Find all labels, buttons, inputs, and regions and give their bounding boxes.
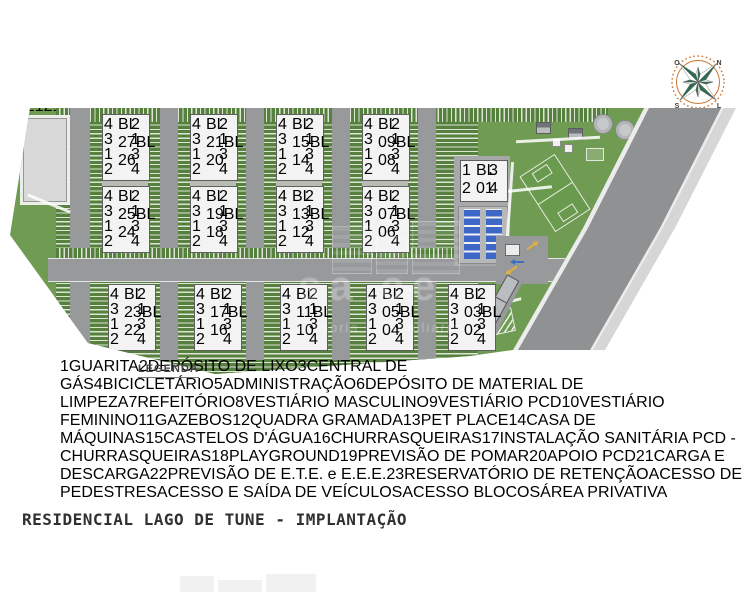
lg-item: 9VESTIÁRIO PCD	[429, 394, 561, 411]
cell: 3	[192, 131, 205, 145]
cell: 1	[278, 146, 291, 160]
lg-badge: 16	[313, 430, 331, 447]
pdot	[382, 301, 394, 315]
lg-label: PREVISÃO DE E.T.E. e E.E.E.	[168, 466, 387, 483]
pdot	[206, 203, 218, 217]
pdot	[206, 176, 218, 179]
pdot	[382, 331, 394, 345]
cell: 3	[196, 301, 209, 315]
residential-block: 42311324BL 25BL 24	[102, 186, 150, 253]
bcenter: BL 25BL 24	[118, 188, 130, 202]
lg-item: 4BICICLETÁRIO	[94, 376, 214, 393]
compass-west-label: O	[674, 60, 680, 67]
internal-road	[246, 108, 264, 360]
lg-item: 22PREVISÃO DE E.T.E. e E.E.E.	[150, 466, 387, 483]
bcenter: BL 03BL 02	[464, 286, 476, 300]
pdot	[192, 176, 205, 179]
lg-label: PREVISÃO DE POMAR	[358, 448, 530, 465]
internal-road	[332, 108, 350, 360]
bcenter: BL 21BL 20	[206, 116, 218, 130]
internal-road	[160, 108, 178, 360]
pdot	[476, 198, 488, 200]
pdot	[124, 331, 136, 345]
lg-item: ACESSO E SAÍDA DE VEÍCULOS	[157, 484, 402, 501]
lg-label: RESERVATÓRIO DE RETENÇÃO	[404, 466, 648, 483]
bcenter: BL 09BL 08	[378, 116, 390, 130]
pdot	[206, 233, 218, 247]
bcenter: BL 19BL 18	[206, 188, 218, 202]
lg-label: GAZEBOS	[155, 412, 232, 429]
pdot	[104, 176, 117, 179]
compass-north-label: N	[716, 60, 721, 67]
lg-item: ÁREA PRIVATIVA	[540, 484, 667, 501]
lg-badge: 4	[94, 376, 103, 393]
bbq-structure	[536, 122, 551, 134]
pdot	[118, 146, 130, 160]
residential-block: 42311324BL 13BL 12	[276, 186, 324, 253]
pdot	[118, 233, 130, 247]
cell: 1	[450, 316, 463, 330]
lg-item: 18PLAYGROUND	[211, 448, 340, 465]
pdot	[378, 233, 390, 247]
lg-label: ÁREA PRIVATIVA	[540, 484, 667, 501]
lg-label: VESTIÁRIO PCD	[438, 394, 562, 411]
pdot	[206, 161, 218, 175]
pdot	[292, 233, 304, 247]
lg-label: ADMINISTRAÇÃO	[223, 376, 356, 393]
site-plan-page: N O S L	[0, 0, 750, 611]
legend-title: LEGENDA	[138, 363, 199, 378]
lg-label: CHURRASQUEIRAS	[331, 430, 482, 447]
pdot	[278, 176, 291, 179]
pdot	[305, 176, 318, 179]
cell: 3	[192, 203, 205, 217]
pdot	[378, 131, 390, 145]
guard-house	[505, 244, 520, 256]
internal-road	[418, 108, 436, 360]
lg-badge: 1	[60, 358, 69, 375]
marker: 21	[26, 98, 44, 115]
cell: 3	[278, 131, 291, 145]
lg-badge: 14	[508, 412, 526, 429]
cell: 3	[450, 301, 463, 315]
pdot	[124, 316, 136, 330]
pdot	[378, 146, 390, 160]
pdot	[378, 218, 390, 232]
residential-block: 42311324BL 23BL 22	[108, 284, 156, 351]
legend: LEGENDA 1GUARITA2DEPÓSITO DE LIXO3CENTRA…	[60, 358, 748, 470]
pdot	[464, 331, 476, 345]
cell: 1	[196, 316, 209, 330]
cell: 1	[104, 146, 117, 160]
cell: 1	[110, 316, 123, 330]
lg-badge: 11	[138, 412, 155, 429]
pdot	[395, 346, 408, 349]
pdot	[382, 346, 394, 349]
residential-block: 42311324BL 09BL 08	[362, 114, 410, 181]
lg-label: ACESSO E SAÍDA DE VEÍCULOS	[157, 484, 402, 501]
residential-block: 42311324BL 27BL 26	[102, 114, 150, 181]
cell: 3	[364, 203, 377, 217]
pdot	[464, 346, 476, 349]
residential-block: 42311324BL 05BL 04	[366, 284, 414, 351]
pdot	[223, 346, 236, 349]
lg-label: PLAYGROUND	[229, 448, 340, 465]
water-tank	[593, 114, 613, 134]
residential-block: 42311324BL 03BL 02	[448, 284, 496, 351]
pdot	[382, 316, 394, 330]
pdot	[192, 248, 205, 251]
pdot	[378, 176, 390, 179]
cell: 4	[282, 286, 295, 300]
covered-parking-row	[464, 209, 480, 259]
cell: 1	[104, 218, 117, 232]
pdot	[219, 176, 232, 179]
pdot	[296, 346, 308, 349]
lg-badge: 6	[356, 376, 365, 393]
lg-label: QUADRA GRAMADA	[250, 412, 403, 429]
cell: 2	[192, 233, 205, 247]
pdot	[110, 346, 123, 349]
lg-item: 19PREVISÃO DE POMAR	[340, 448, 529, 465]
pdot	[219, 248, 232, 251]
sports-field	[519, 154, 590, 232]
marker: 23	[8, 98, 26, 115]
pdot	[118, 248, 130, 251]
pdot	[296, 316, 308, 330]
lg-item: 12QUADRA GRAMADA	[232, 412, 403, 429]
pdot	[292, 203, 304, 217]
pdot	[118, 203, 130, 217]
cell: 3	[282, 301, 295, 315]
lg-label: ACESSO BLOCOS	[402, 484, 540, 501]
pdot	[292, 248, 304, 251]
cell: 1	[364, 218, 377, 232]
pdot	[391, 176, 404, 179]
bcenter: BL 27BL 26	[118, 116, 130, 130]
cell: 1	[278, 218, 291, 232]
bcenter: BL 17BL 16	[210, 286, 222, 300]
cell: 4	[278, 188, 291, 202]
pdot	[292, 131, 304, 145]
cell: 3	[364, 131, 377, 145]
pdot	[296, 301, 308, 315]
bcenter: BL 11BL 10	[296, 286, 308, 300]
pdot	[118, 161, 130, 175]
pdot	[391, 248, 404, 251]
pdot	[464, 301, 476, 315]
pdot	[196, 346, 209, 349]
cell: 2	[450, 331, 463, 345]
lg-item: 11GAZEBOS	[138, 412, 232, 429]
cell: 1	[368, 316, 381, 330]
cell: 4	[110, 286, 123, 300]
residential-block: 42311324BL 15BL 14	[276, 114, 324, 181]
lg-label: REFEITÓRIO	[137, 394, 235, 411]
lg-item: 16CHURRASQUEIRAS	[313, 430, 482, 447]
cell: 2	[278, 233, 291, 247]
cell: 4	[104, 188, 117, 202]
cell: 1	[192, 218, 205, 232]
pdot	[131, 176, 144, 179]
pdot	[464, 316, 476, 330]
retention-reservoir-building	[23, 118, 67, 202]
lg-item: 23RESERVATÓRIO DE RETENÇÃO	[386, 466, 648, 483]
pet-place-area	[586, 148, 604, 161]
goal-box	[532, 164, 553, 183]
pdot	[210, 346, 222, 349]
cell: 2	[364, 161, 377, 175]
lg-badge: 9	[429, 394, 438, 411]
residential-block: 42311324BL 21BL 20	[190, 114, 238, 181]
lg-item: 7REFEITÓRIO	[128, 394, 235, 411]
lg-badge: 19	[340, 448, 358, 465]
cell: 1	[462, 162, 475, 179]
cell: 4	[364, 116, 377, 130]
pdot	[476, 180, 488, 197]
lg-item: 1GUARITA	[60, 358, 139, 375]
pdot	[206, 146, 218, 160]
pdot	[206, 248, 218, 251]
pdot	[124, 346, 136, 349]
pdot	[278, 248, 291, 251]
pdot	[210, 331, 222, 345]
lg-badge: 5	[214, 376, 223, 393]
pdot	[124, 301, 136, 315]
lg-label: APOIO PCD	[547, 448, 636, 465]
watermark-footer-shape	[266, 574, 316, 592]
lg-badge: 12	[232, 412, 250, 429]
pdot	[282, 346, 295, 349]
lg-label: CASTELOS D'ÁGUA	[163, 430, 313, 447]
lg-badge: 10	[561, 394, 579, 411]
pdot	[292, 161, 304, 175]
pdot	[118, 131, 130, 145]
lg-label: VESTIÁRIO MASCULINO	[244, 394, 429, 411]
lg-label: GUARITA	[69, 358, 139, 375]
lg-item: 13PET PLACE	[403, 412, 509, 429]
cell: 4	[364, 188, 377, 202]
pdot	[206, 131, 218, 145]
cell: 4	[104, 116, 117, 130]
cell: 2	[110, 331, 123, 345]
cell: 2	[368, 331, 381, 345]
cell: 1	[282, 316, 295, 330]
pdot	[462, 198, 475, 200]
pdot	[104, 248, 117, 251]
pedestrian-access-arrow	[512, 261, 524, 263]
watermark-footer-shape	[218, 580, 262, 592]
lg-badge: 22	[150, 466, 168, 483]
pdot	[131, 248, 144, 251]
pdot	[309, 346, 322, 349]
lg-badge: 8	[235, 394, 244, 411]
lg-badge: 13	[403, 412, 421, 429]
cell: 4	[192, 116, 205, 130]
bcenter: BL 23BL 22	[124, 286, 136, 300]
cell: 2	[364, 233, 377, 247]
lg-item: 5ADMINISTRAÇÃO	[214, 376, 356, 393]
bcenter: BL 05BL 04	[382, 286, 394, 300]
bcenter: BL 15BL 14	[292, 116, 304, 130]
cell: 2	[282, 331, 295, 345]
pdot	[292, 146, 304, 160]
gazebo	[564, 144, 573, 153]
pdot	[364, 248, 377, 251]
cell: 4	[196, 286, 209, 300]
residential-block: 42311324BL 11BL 10	[280, 284, 328, 351]
pdot	[477, 346, 490, 349]
cell: 2	[278, 161, 291, 175]
pdot	[210, 316, 222, 330]
pdot	[368, 346, 381, 349]
lg-badge: 15	[145, 430, 163, 447]
lg-badge: 17	[482, 430, 500, 447]
cell: 2	[196, 331, 209, 345]
bcenter: BL 01	[476, 162, 488, 179]
pdot	[206, 218, 218, 232]
pdot	[378, 248, 390, 251]
pdot	[364, 176, 377, 179]
lg-label: BICICLETÁRIO	[103, 376, 214, 393]
cell: 1	[364, 146, 377, 160]
pdot	[118, 218, 130, 232]
lg-label: PET PLACE	[421, 412, 509, 429]
pdot	[137, 346, 150, 349]
cell: 3	[110, 301, 123, 315]
pdot	[292, 218, 304, 232]
pdot	[489, 198, 502, 200]
cell: 2	[104, 233, 117, 247]
lg-badge: 20	[529, 448, 547, 465]
pdot	[296, 331, 308, 345]
lg-badge: 18	[211, 448, 229, 465]
lg-item: ACESSO BLOCOS	[402, 484, 540, 501]
cell: 3	[104, 131, 117, 145]
pdot	[378, 203, 390, 217]
cell: 4	[450, 286, 463, 300]
pdot	[450, 346, 463, 349]
cell: 3	[104, 203, 117, 217]
residential-block: 42311324BL 17BL 16	[194, 284, 242, 351]
cell: 4	[192, 188, 205, 202]
page-title: RESIDENCIAL LAGO DE TUNE - IMPLANTAÇÃO	[22, 510, 407, 529]
internal-road	[70, 108, 90, 360]
cell: 3	[368, 301, 381, 315]
watermark-footer-shape	[180, 576, 214, 592]
implantation-plan: 42311324BL 27BL 2642311324BL 21BL 204231…	[8, 98, 748, 390]
pdot	[292, 176, 304, 179]
bcenter: BL 07BL 06	[378, 188, 390, 202]
residential-block: 42311324BL 19BL 18	[190, 186, 238, 253]
cell: 2	[462, 180, 475, 197]
residential-block: 42311324BL 07BL 06	[362, 186, 410, 253]
lg-badge: 21	[636, 448, 654, 465]
pdot	[378, 161, 390, 175]
cell: 4	[368, 286, 381, 300]
lg-badge: 3	[298, 358, 307, 375]
cell: 2	[104, 161, 117, 175]
cell: 4	[278, 116, 291, 130]
pdot	[210, 301, 222, 315]
bcenter: BL 13BL 12	[292, 188, 304, 202]
cell: 2	[192, 161, 205, 175]
lg-item: 8VESTIÁRIO MASCULINO	[235, 394, 429, 411]
lg-badge: 23	[386, 466, 404, 483]
cell: 3	[278, 203, 291, 217]
goal-box	[557, 203, 578, 222]
pdot	[118, 176, 130, 179]
cell: 1	[192, 146, 205, 160]
lg-col: 15CASTELOS D'ÁGUA16CHURRASQUEIRAS17INSTA…	[60, 430, 736, 465]
lg-item: 20APOIO PCD	[529, 448, 636, 465]
pdot	[305, 248, 318, 251]
support-block: 1324BL 01	[460, 160, 508, 202]
lg-item: 15CASTELOS D'ÁGUA	[145, 430, 313, 447]
